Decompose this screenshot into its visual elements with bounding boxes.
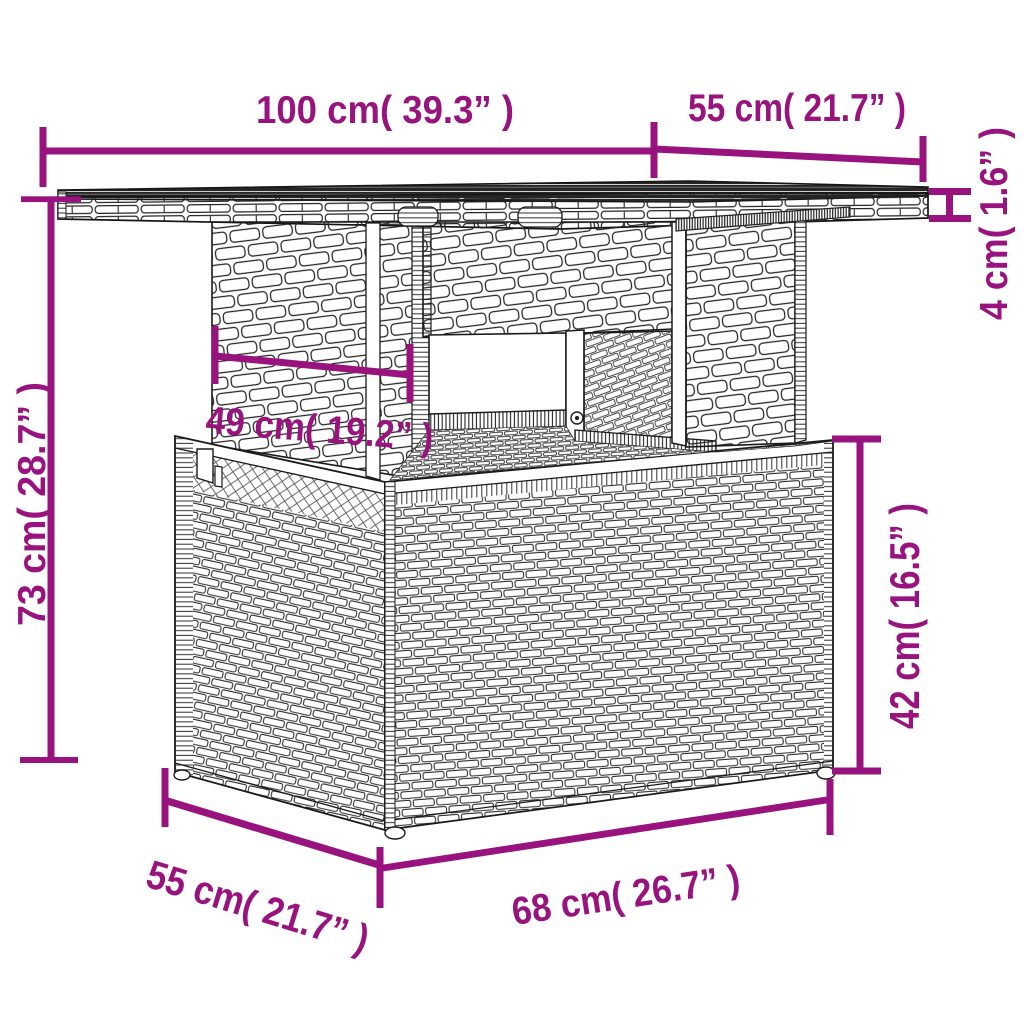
svg-text:100 cm( 39.3” ): 100 cm( 39.3” ) [256, 89, 514, 132]
svg-text:42 cm( 16.5” ): 42 cm( 16.5” ) [881, 503, 928, 729]
svg-text:55 cm( 21.7” ): 55 cm( 21.7” ) [688, 87, 906, 130]
svg-text:4 cm( 1.6” ): 4 cm( 1.6” ) [973, 127, 1016, 320]
svg-text:73 cm( 28.7” ): 73 cm( 28.7” ) [11, 382, 54, 626]
